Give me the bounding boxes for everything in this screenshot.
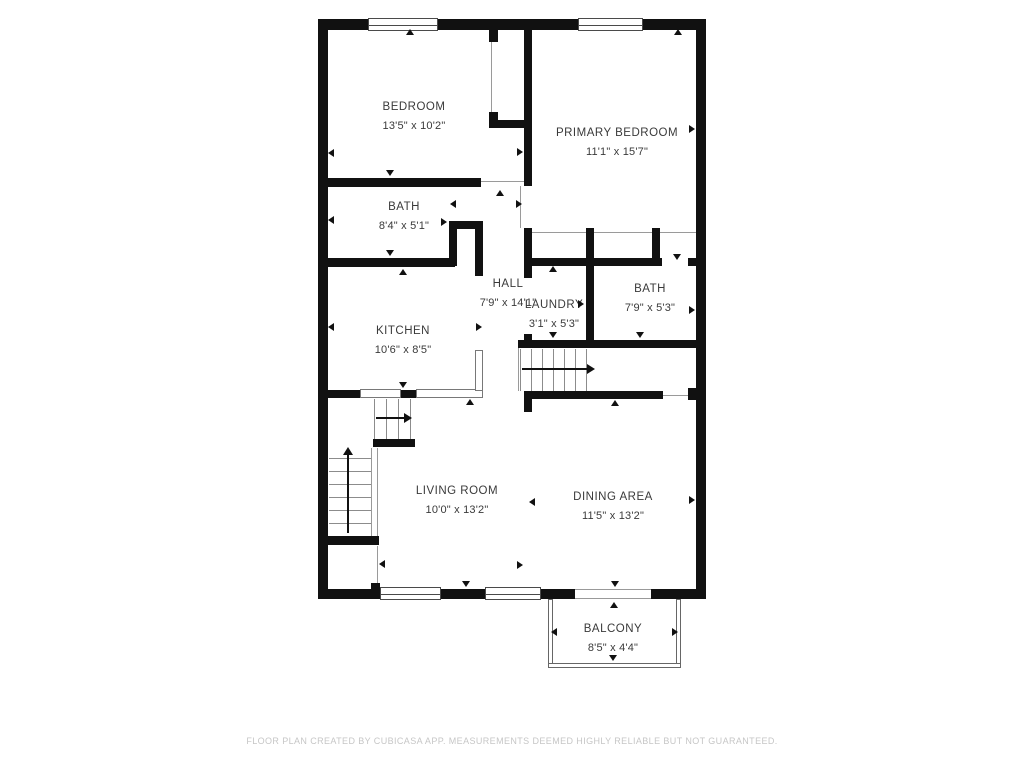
stair-tread	[520, 349, 521, 391]
dimension-marker	[517, 148, 523, 156]
wall	[475, 221, 483, 276]
room-dimensions-laundry: 3'1" x 5'3"	[529, 318, 579, 330]
stair-tread	[531, 349, 532, 391]
wall	[541, 589, 575, 599]
dimension-marker	[496, 190, 504, 196]
stair-direction-arrow	[522, 368, 587, 370]
footer-disclaimer: FLOOR PLAN CREATED BY CUBICASA APP. MEAS…	[0, 736, 1024, 746]
stair-direction-arrow	[376, 417, 404, 419]
dimension-marker	[450, 200, 456, 208]
dimension-marker	[328, 216, 334, 224]
dimension-marker	[406, 29, 414, 35]
room-dimensions-dining-area: 11'5" x 13'2"	[582, 510, 644, 522]
wall	[524, 258, 662, 266]
wall	[688, 258, 696, 266]
dimension-marker	[689, 125, 695, 133]
wall	[401, 390, 416, 398]
stair-direction-arrowhead	[404, 413, 412, 423]
balcony-railing	[548, 663, 681, 668]
window	[578, 18, 643, 31]
stair-tread	[374, 399, 375, 439]
separator-line	[663, 395, 688, 396]
wall	[696, 19, 706, 599]
window-glass-line	[486, 594, 540, 595]
stair-tread	[386, 399, 387, 439]
room-dimensions-balcony: 8'5" x 4'4"	[588, 642, 638, 654]
stair-tread	[329, 523, 371, 524]
wall	[318, 178, 481, 187]
wall	[524, 391, 532, 412]
separator-line	[532, 232, 586, 233]
wall	[326, 536, 379, 545]
room-label-primary-bedroom: PRIMARY BEDROOM	[556, 127, 678, 139]
room-label-hall: HALL	[493, 278, 524, 290]
floor-plan: FLOOR PLAN CREATED BY CUBICASA APP. MEAS…	[0, 0, 1024, 768]
window-glass-line	[381, 594, 440, 595]
kitchen-counter	[416, 389, 483, 398]
dimension-marker	[549, 266, 557, 272]
dimension-marker	[672, 628, 678, 636]
wall	[528, 391, 663, 399]
wall	[489, 120, 532, 128]
wall	[524, 28, 532, 186]
dimension-marker	[379, 560, 385, 568]
dimension-marker	[610, 602, 618, 608]
dimension-marker	[462, 581, 470, 587]
dimension-marker	[611, 581, 619, 587]
wall	[688, 388, 696, 400]
dimension-marker	[689, 496, 695, 504]
stair-tread	[329, 497, 371, 498]
stair-tread	[564, 349, 565, 391]
dimension-marker	[386, 250, 394, 256]
dimension-marker	[674, 29, 682, 35]
window-glass-line	[579, 25, 642, 26]
stair-tread	[329, 458, 371, 459]
dimension-marker	[673, 254, 681, 260]
dimension-marker	[328, 149, 334, 157]
stair-tread	[398, 399, 399, 439]
wall	[524, 266, 532, 278]
dimension-marker	[441, 218, 447, 226]
wall	[489, 28, 498, 42]
separator-line	[518, 348, 519, 391]
separator-line	[481, 181, 524, 182]
wall	[318, 258, 455, 267]
room-dimensions-bath: 8'4" x 5'1"	[379, 220, 429, 232]
stair-tread	[542, 349, 543, 391]
dimension-marker	[551, 628, 557, 636]
stair-tread	[329, 484, 371, 485]
wall	[318, 19, 328, 599]
separator-line	[371, 448, 372, 537]
dimension-marker	[689, 306, 695, 314]
dimension-marker	[466, 399, 474, 405]
room-dimensions-bedroom: 13'5" x 10'2"	[383, 120, 446, 132]
room-label-dining-area: DINING AREA	[573, 491, 653, 503]
window-glass-line	[369, 25, 437, 26]
separator-line	[594, 232, 652, 233]
room-dimensions-living-room: 10'0" x 13'2"	[426, 504, 489, 516]
room-label-bedroom: BEDROOM	[383, 101, 446, 113]
dimension-marker	[476, 323, 482, 331]
separator-line	[660, 232, 696, 233]
dimension-marker	[611, 400, 619, 406]
room-dimensions-kitchen: 10'6" x 8'5"	[375, 344, 432, 356]
window	[485, 587, 541, 600]
dimension-marker	[386, 170, 394, 176]
room-label-balcony: BALCONY	[584, 623, 642, 635]
room-label-bath-2: BATH	[634, 283, 666, 295]
wall	[371, 583, 380, 590]
stair-direction-arrow	[347, 455, 349, 533]
stair-tread	[329, 510, 371, 511]
room-dimensions-bath-2: 7'9" x 5'3"	[625, 302, 675, 314]
wall	[651, 589, 706, 599]
sliding-door-opening	[575, 589, 651, 599]
dimension-marker	[399, 269, 407, 275]
dimension-marker	[516, 200, 522, 208]
dimension-marker	[328, 323, 334, 331]
separator-line	[377, 448, 378, 537]
room-label-kitchen: KITCHEN	[376, 325, 430, 337]
wall	[318, 390, 360, 398]
separator-line	[491, 42, 492, 113]
stair-tread	[329, 471, 371, 472]
wall	[318, 589, 380, 599]
dimension-marker	[578, 300, 584, 308]
dimension-marker	[609, 655, 617, 661]
stair-direction-arrowhead	[587, 364, 595, 374]
kitchen-counter	[360, 389, 401, 398]
stair-direction-arrowhead	[343, 447, 353, 455]
kitchen-counter	[475, 350, 483, 391]
wall	[518, 340, 706, 348]
room-dimensions-primary-bedroom: 11'1" x 15'7"	[586, 146, 648, 158]
room-label-bath: BATH	[388, 201, 420, 213]
dimension-marker	[549, 332, 557, 338]
window	[380, 587, 441, 600]
wall	[586, 228, 594, 346]
room-label-living-room: LIVING ROOM	[416, 485, 498, 497]
stair-tread	[575, 349, 576, 391]
dimension-marker	[636, 332, 644, 338]
window	[368, 18, 438, 31]
stair-tread	[553, 349, 554, 391]
dimension-marker	[517, 561, 523, 569]
wall	[441, 589, 485, 599]
dimension-marker	[399, 382, 407, 388]
dimension-marker	[529, 498, 535, 506]
room-label-laundry: LAUNDRY	[525, 299, 583, 311]
wall	[373, 439, 415, 447]
